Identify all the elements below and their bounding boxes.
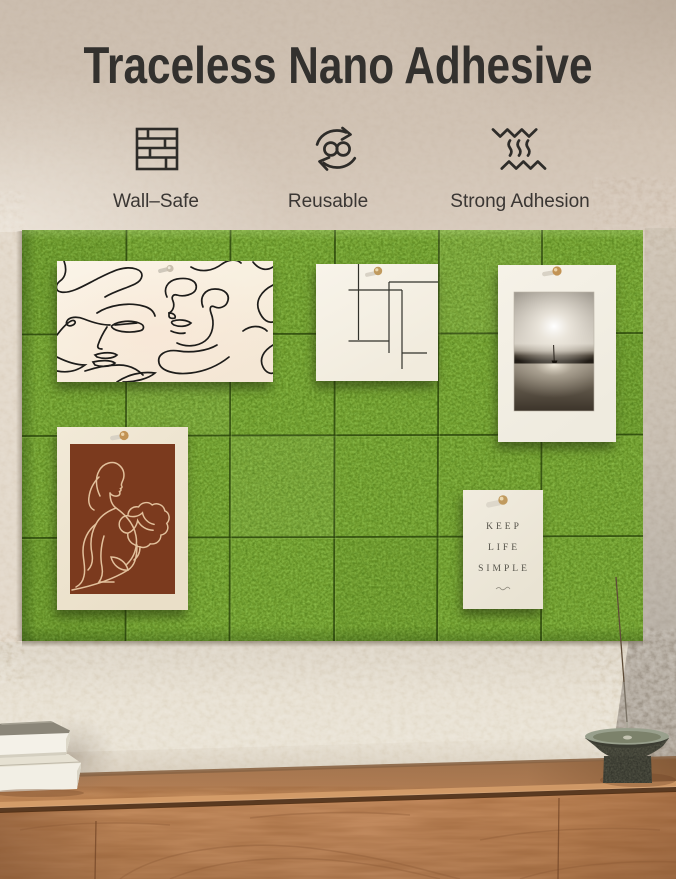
svg-text:KEEP: KEEP <box>486 522 522 532</box>
svg-text:LIFE: LIFE <box>488 543 520 553</box>
svg-text:SIMPLE: SIMPLE <box>478 564 530 574</box>
